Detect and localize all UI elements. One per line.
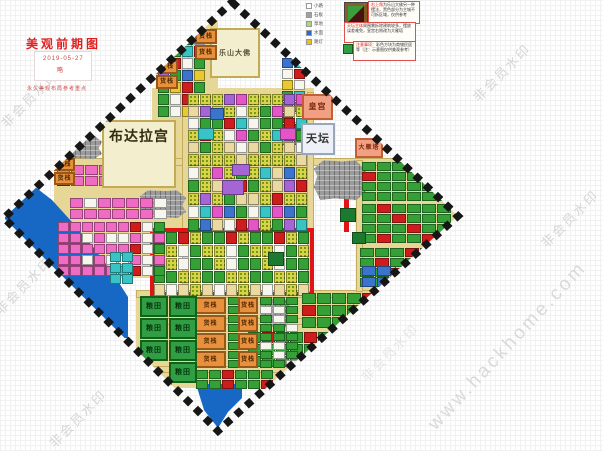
grid-southeast-res-1-cell [302,305,316,316]
grid-center-south-cell [284,193,295,205]
grid-center-north-cell [236,142,247,153]
grid-inner-loop-cell [238,284,249,296]
grain-field: 粮田 [140,296,168,317]
grid-west-small-cell [58,266,69,276]
grid-center-south-cell [272,180,283,192]
grid-top-shops-cell [182,82,193,93]
grid-inner-loop-cell [166,245,177,257]
grid-east-res-2-cell [407,214,421,223]
grid-bottom-green-2-cell [260,315,272,323]
grid-east-res-3-cell [390,248,404,257]
grid-bottom-green-2-cell [286,342,298,350]
grid-inner-loop-cell [286,284,297,296]
grid-east-res-2-cell [422,214,436,223]
warehouse: 货栈 [195,351,226,368]
grid-east-res-1-cell [407,172,421,181]
grid-inner-loop-cell [190,284,201,296]
grid-east-res-1-cell [392,172,406,181]
grid-west-small-cell [70,222,81,232]
grid-west-small-cell [130,233,141,243]
grid-center-south-cell [260,180,271,192]
grid-center-north-cell [224,94,235,105]
grid-topright-shops-cell [294,69,305,79]
grid-center-north-cell [284,142,295,153]
grid-southeast-res-1-cell [362,293,376,304]
grid-east-res-3-cell [435,268,449,277]
grid-east-res-2-cell [377,224,391,233]
grid-inner-loop-cell [166,258,177,270]
grid-center-north-cell [260,130,271,141]
grid-west-small-cell [154,244,165,254]
grid-inner-loop-cell [226,258,237,270]
grid-top-shops-cell [182,70,193,81]
grid-center-north-cell [224,142,235,153]
grid-east-res-2-cell [422,234,436,243]
grid-top-shops-cell [158,46,169,57]
grid-east-res-2-cell [392,224,406,233]
grid-center-south-cell [212,219,223,231]
grid-bottom-last-cell [209,380,221,389]
grid-center-north-cell [284,106,295,117]
warehouse: 货栈 [238,297,258,314]
grid-southeast-res-2-cell [304,332,317,343]
grid-west-small-cell [58,255,69,265]
grid-west-small-cell [142,255,153,265]
grid-inner-loop-cell [178,258,189,270]
warehouse: 货栈 [195,45,217,60]
grid-southeast-res-1-cell [302,293,316,304]
grid-center-north-cell [188,142,199,153]
grid-inner-loop-cell [190,232,201,244]
grid-west-small-cell [118,222,129,232]
grid-west-small-cell [142,266,153,276]
grid-center-north-cell [260,106,271,117]
grid-west-small-cell [142,222,153,232]
grid-inner-loop-cell [214,232,225,244]
grid-center-north-cell [248,142,259,153]
grid-southeast-res-1-cell [332,317,346,328]
grid-inner-loop-cell [238,271,249,283]
grid-center-south-cell [260,206,271,218]
grid-east-res-2-cell [377,234,391,243]
grid-southeast-res-2-cell [346,356,359,367]
deco-purple-2 [232,164,250,176]
grid-center-south-cell [200,193,211,205]
grid-center-south-cell [272,154,283,166]
legend-swatch [306,3,312,9]
grid-center-south-cell [296,206,307,218]
grid-center-north-cell [260,118,271,129]
grid-top-shops-cell [158,22,169,33]
grid-bottom-green-2-cell [260,333,272,341]
grid-west-cyan-cell [122,252,133,262]
grid-southeast-res-2-cell [374,332,387,343]
grid-bottom-last-cell [235,380,247,389]
grid-inner-loop-cell [214,284,225,296]
grid-southeast-res-2-cell [318,356,331,367]
grid-bottom-last-cell [222,380,234,389]
grid-center-south-cell [248,193,259,205]
legend-note-2: 天坛主体周围需拆除建筑较多，摆放误差难免，皇宫右侧改为大雁塔 [344,22,416,43]
warehouse: 货栈 [156,60,178,74]
grid-center-north-cell [236,118,247,129]
grid-east-res-3-cell [405,278,419,287]
grid-southeast-res-1-cell [407,293,421,304]
grid-bottom-last-cell [248,380,260,389]
grid-east-res-3-cell [420,268,434,277]
grid-southeast-res-2-cell [402,356,415,367]
grid-center-north-cell [236,106,247,117]
grid-topright-shops-cell [294,58,305,68]
grid-west-small-cell [70,244,81,254]
building-potala-palace: 布达拉宫 [102,120,176,188]
mountain-1 [60,135,102,159]
grid-center-south-cell [296,154,307,166]
legend-label: 石板 [314,12,323,18]
grid-center-south-cell [200,154,211,166]
grid-west-cyan-cell [110,263,121,273]
legend-swatch [306,39,312,45]
grid-inner-loop-cell [190,245,201,257]
watermark-text: 非会员水印 [356,319,422,385]
grid-west-cyan-cell [110,252,121,262]
grid-center-south-cell [188,180,199,192]
legend-item: 石板 [306,12,323,18]
grid-bottom-green-2-cell [260,342,272,350]
grid-west-small-cell [94,266,105,276]
grid-inner-loop-cell [298,271,309,283]
grid-southeast-res-2-cell [374,344,387,355]
grid-bottom-green-2-cell [260,360,272,368]
grid-east-res-3-cell [390,258,404,267]
legend-note-3: 注意事项：彩色方块为商铺民居等（注：示意图仅供美观参考） [353,41,416,61]
grid-west-small-cell [58,233,69,243]
warehouse: 货栈 [156,75,178,89]
grid-west-small-cell [154,255,165,265]
grid-center-south-cell [260,154,271,166]
legend-label: 草地 [314,21,323,27]
grid-southeast-res-1-cell [347,305,361,316]
grid-center-south-cell [284,180,295,192]
grid-west-pink-2-cell [140,198,153,208]
grid-east-res-3-cell [390,278,404,287]
grid-west-cyan-cell [122,274,133,284]
grid-west-small-cell [70,233,81,243]
grid-center-south-cell [248,180,259,192]
legend-label: 路灯 [314,39,323,45]
grid-east-res-3-cell [435,258,449,267]
grid-west-small-cell [70,255,81,265]
grid-southeast-res-2-cell [332,344,345,355]
warehouse: 货栈 [238,315,258,332]
grid-southeast-res-1-cell [347,293,361,304]
grid-center-north-cell [236,130,247,141]
grid-inner-loop-cell [202,232,213,244]
warehouse: 货栈 [238,333,258,350]
grid-west-small-cell [94,222,105,232]
grid-center-south-cell [284,154,295,166]
building-imperial-palace: 皇宫 [302,94,333,120]
grid-east-res-3-cell [435,278,449,287]
grid-east-res-1-cell [362,172,376,181]
grid-center-south-cell [236,219,247,231]
grid-west-small-cell [154,266,165,276]
grid-bottom-green-2-cell [273,351,285,359]
grid-bottom-green-2-cell [286,324,298,332]
grid-center-south-cell [248,206,259,218]
grid-bottom-green-2-cell [273,342,285,350]
deco-darkgreen-2 [340,208,356,222]
grid-inner-loop-cell [262,284,273,296]
grid-bottom-green-2-cell [286,297,298,305]
grid-top-shops-cell [182,46,193,57]
grid-center-south-cell [296,193,307,205]
grid-east-blue-cell [362,277,376,287]
grid-inner-loop-cell [250,245,261,257]
title-date: 2019-05-27 [43,56,84,62]
watermark-text: 非会员水印 [536,185,602,251]
grid-bottom-green-2-cell [273,315,285,323]
grid-bottom-last-cell [261,370,273,379]
grid-center-south-cell [224,219,235,231]
grid-east-res-1-cell [407,182,421,191]
grid-southeast-res-2-cell [332,356,345,367]
grid-inner-loop-cell [274,232,285,244]
grid-center-south-cell [284,219,295,231]
grid-east-res-1-cell [407,192,421,201]
grid-east-res-1-cell [362,192,376,201]
grid-inner-loop-cell [226,284,237,296]
grid-east-res-1-cell [377,192,391,201]
building-temple-of-heaven: 天坛 [301,123,335,155]
grid-east-res-2-cell [407,224,421,233]
grid-inner-loop-cell [178,271,189,283]
deco-cyan-1 [198,128,214,140]
grid-bottom-last-cell [222,370,234,379]
grid-east-res-2-cell [422,224,436,233]
grid-southeast-res-2-cell [360,344,373,355]
grid-bottom-green-2-cell [273,324,285,332]
grid-inner-loop-cell [202,284,213,296]
watermark-text: 非会员水印 [0,252,56,318]
grid-west-pink-2-cell [140,209,153,219]
grid-center-south-cell [200,180,211,192]
grid-east-res-1-cell [392,192,406,201]
grid-top-shops-cell [182,58,193,69]
grid-east-res-2-cell [407,234,421,243]
grid-center-south-cell [212,206,223,218]
grid-center-north-cell [248,106,259,117]
grid-center-south-cell [296,219,307,231]
grid-east-res-1-cell [437,172,451,181]
grid-center-north-cell [272,106,283,117]
grid-center-south-cell [260,193,271,205]
grid-center-south-cell [200,206,211,218]
grid-center-north-cell [212,94,223,105]
grid-inner-loop-cell [262,232,273,244]
grid-west-small-cell [106,222,117,232]
grid-southeast-res-2-cell [388,344,401,355]
grid-east-res-1-cell [377,162,391,171]
grid-inner-loop-cell [202,258,213,270]
grid-west-small-cell [82,266,93,276]
grid-east-res-1-cell [392,162,406,171]
grid-inner-loop-cell [202,245,213,257]
legend-label: 水面 [314,30,323,36]
grid-topright-shops-cell [282,58,293,68]
grid-southeast-res-1-cell [332,305,346,316]
grid-east-res-2-cell [377,204,391,213]
legend-swatch [306,12,312,18]
building-leshan-buddha: 乐山大佛 [210,28,260,78]
grid-inner-loop-cell [214,258,225,270]
grid-inner-loop-cell [286,258,297,270]
grid-southeast-res-1-cell [347,317,361,328]
grid-east-res-3-cell [405,268,419,277]
grid-west-pink-2-cell [126,209,139,219]
grid-southeast-res-2-cell [402,344,415,355]
grid-top-shops-cell [158,94,169,105]
grain-field: 粮田 [169,296,197,317]
grid-west-small-cell [70,266,81,276]
grid-southeast-res-1-cell [317,293,331,304]
grid-top-shops-cell [158,106,169,117]
grid-southeast-res-2-cell [318,344,331,355]
grid-east-res-1-cell [377,172,391,181]
grid-center-north-cell [188,106,199,117]
grid-top-shops-cell [170,34,181,45]
grid-center-south-cell [284,206,295,218]
grid-bottom-green-2-cell [273,297,285,305]
grid-southeast-res-1-cell [377,293,391,304]
grid-west-pink-2-cell [98,198,111,208]
grid-east-blue-cell [377,266,391,276]
grid-west-small-cell [82,244,93,254]
grid-center-south-cell [296,167,307,179]
grid-east-res-2-cell [377,214,391,223]
grid-southeast-res-1-cell [377,305,391,316]
grid-center-north-cell [248,130,259,141]
watermark-text: 非会员水印 [44,385,110,451]
grid-center-north-cell [224,118,235,129]
building-giant-wild-goose-pagoda: 大雁塔 [355,138,383,158]
grid-center-north-cell [236,94,247,105]
warehouse: 货栈 [54,172,75,185]
legend-swatch [306,30,312,36]
grid-east-res-2-cell [437,234,451,243]
grid-bottom-green-2-cell [286,351,298,359]
grid-center-north-cell [260,94,271,105]
grid-bottom-last-cell [261,380,273,389]
grid-west-small-cell [154,222,165,232]
grid-center-south-cell [284,167,295,179]
grid-bottom-last-cell [196,370,208,379]
grid-center-south-cell [272,167,283,179]
grid-west-small-cell [130,222,141,232]
grid-center-south-cell [260,167,271,179]
legend-swatch [306,21,312,27]
grid-west-pink-2-cell [70,198,83,208]
grid-west-pink-2-cell [84,209,97,219]
grid-east-res-1-cell [437,182,451,191]
grid-center-north-cell [200,142,211,153]
grid-center-south-cell [188,167,199,179]
legend-item: 小路 [306,3,323,9]
grid-center-south-cell [224,206,235,218]
grid-southeast-res-2-cell [332,332,345,343]
grid-bottom-green-2-cell [260,351,272,359]
warehouse: 货栈 [54,158,75,171]
grid-east-res-1-cell [422,172,436,181]
grid-east-res-3-cell [435,248,449,257]
grid-west-small-cell [142,233,153,243]
grid-east-res-2-cell [392,204,406,213]
grid-inner-loop-cell [238,232,249,244]
grid-west-small-cell [82,233,93,243]
grid-southeast-res-1-cell [407,305,421,316]
grid-southeast-res-1-cell [407,317,421,328]
grain-field: 粮田 [140,318,168,339]
grid-inner-loop-cell [250,284,261,296]
grain-field: 粮田 [169,340,197,361]
grid-east-res-1-cell [422,162,436,171]
title-caption: 永久美观布局参考重点 [27,85,87,92]
grid-east-res-1-cell [422,192,436,201]
grid-center-south-cell [188,154,199,166]
grid-center-north-cell [248,118,259,129]
grid-west-small-cell [154,233,165,243]
grid-east-res-2-cell [437,224,451,233]
grid-east-res-1-cell [407,162,421,171]
grid-southeast-res-1-cell [392,293,406,304]
grid-bottom-green-2-cell [286,306,298,314]
grid-east-res-1-cell [437,192,451,201]
grid-center-north-cell [284,94,295,105]
grid-bottom-last-cell [196,380,208,389]
grid-bottom-green-2-cell [286,333,298,341]
grid-top-shops-cell [194,82,205,93]
grid-west-pink-2-cell [98,209,111,219]
grid-center-south-cell [212,154,223,166]
grid-top-shops-cell [194,70,205,81]
grid-west-pink-2-cell [154,209,167,219]
grid-east-blue-cell [377,277,391,287]
grid-inner-loop-cell [190,271,201,283]
grid-southeast-res-1-cell [362,317,376,328]
grid-east-res-3-cell [405,248,419,257]
grid-bottom-last-cell [235,370,247,379]
grid-inner-loop-cell [166,232,177,244]
grid-top-shops-cell [170,106,181,117]
grid-west-pink-1-cell [85,176,98,186]
grid-inner-loop-cell [298,258,309,270]
grid-west-pink-2-cell [126,198,139,208]
grid-west-pink-2-cell [112,198,125,208]
legend-green-square [343,44,353,54]
warehouse: 货栈 [195,333,226,350]
grid-east-res-2-cell [362,204,376,213]
grid-southeast-res-2-cell [360,332,373,343]
grid-bottom-green-2-cell [260,297,272,305]
grid-inner-loop-cell [250,232,261,244]
grid-center-north-cell [248,94,259,105]
grid-center-south-cell [260,219,271,231]
grid-inner-loop-cell [190,258,201,270]
grid-west-pink-2-cell [112,209,125,219]
grid-west-small-cell [106,233,117,243]
grid-inner-loop-cell [250,271,261,283]
grid-inner-loop-cell [178,284,189,296]
